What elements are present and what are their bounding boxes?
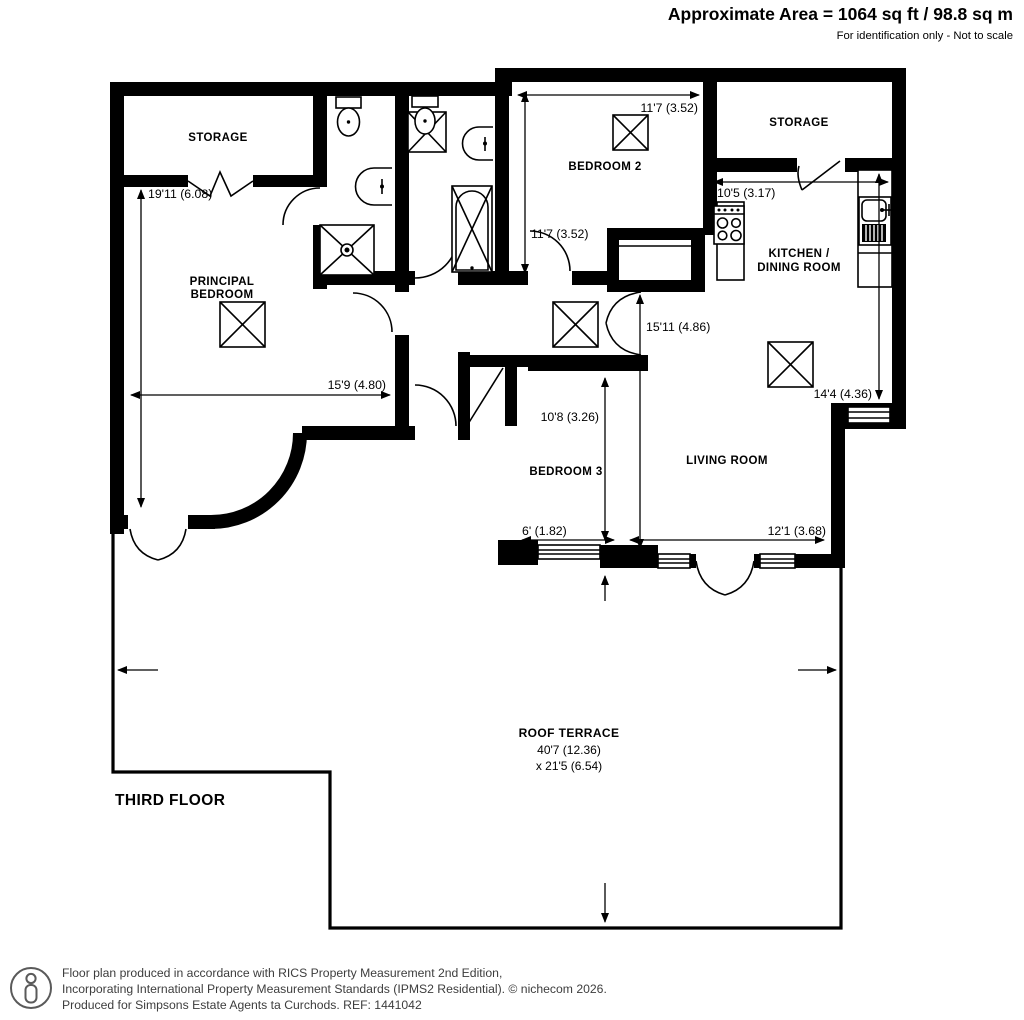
window-kitchen bbox=[848, 407, 890, 423]
room-label-kitchen-line2: DINING ROOM bbox=[757, 262, 841, 274]
kitchen-sink-icon bbox=[859, 197, 891, 245]
dim-label-kitchen-w: 10'5 (3.17) bbox=[717, 186, 775, 200]
dim-label-principal-h: 15'9 (4.80) bbox=[328, 378, 386, 392]
floor-plan-page: Approximate Area = 1064 sq ft / 98.8 sq … bbox=[0, 0, 1024, 1020]
toilet-icon bbox=[336, 97, 361, 136]
sink-icon bbox=[463, 127, 494, 160]
door-storage-right bbox=[798, 161, 840, 190]
door-arc-ensuite bbox=[283, 188, 320, 225]
french-doors-bedroom-terrace bbox=[130, 529, 186, 560]
ceiling-light-icon bbox=[220, 302, 265, 347]
kitchen-cupboard-recess bbox=[619, 240, 691, 280]
room-label-principal-line2: BEDROOM bbox=[191, 289, 254, 301]
dim-label-kitchen-d: 14'4 (4.36) bbox=[814, 387, 872, 401]
terrace-dim-width: 40'7 (12.36) bbox=[537, 743, 601, 757]
curved-wall bbox=[211, 433, 300, 522]
double-doors-living bbox=[606, 292, 641, 355]
dim-label-bed3-w: 6' (1.82) bbox=[522, 524, 567, 538]
door-arc-principal-bedroom bbox=[353, 293, 392, 332]
footer-line2: Incorporating International Property Mea… bbox=[62, 982, 607, 996]
identification-note: For identification only - Not to scale bbox=[837, 30, 1013, 42]
dim-label-principal-v: 19'11 (6.08) bbox=[148, 187, 212, 201]
ceiling-light-icon bbox=[768, 342, 813, 387]
person-icon bbox=[11, 968, 51, 1008]
window-living-right bbox=[760, 554, 795, 568]
hob-icon bbox=[714, 206, 744, 244]
terrace-outline bbox=[113, 532, 841, 928]
door-arc-bedroom3 bbox=[415, 385, 456, 426]
room-label-kitchen-line1: KITCHEN / bbox=[768, 248, 830, 260]
bathroom1-fixtures bbox=[320, 97, 392, 275]
shower-icon bbox=[320, 225, 374, 275]
approx-area-title: Approximate Area = 1064 sq ft / 98.8 sq … bbox=[668, 4, 1013, 24]
room-label-storage-left: STORAGE bbox=[188, 132, 247, 144]
room-label-living: LIVING ROOM bbox=[686, 455, 768, 467]
floor-title: THIRD FLOOR bbox=[115, 792, 225, 809]
dim-label-hall-v: 15'11 (4.86) bbox=[646, 320, 710, 334]
footer-line1: Floor plan produced in accordance with R… bbox=[62, 966, 502, 980]
terrace-dim-depth: x 21'5 (6.54) bbox=[536, 759, 602, 773]
french-doors-terrace bbox=[696, 561, 754, 595]
room-label-bedroom2: BEDROOM 2 bbox=[568, 161, 641, 173]
bathtub-icon bbox=[452, 186, 492, 272]
sink-icon bbox=[356, 168, 393, 205]
bathroom2-fixtures bbox=[408, 96, 493, 272]
room-label-principal-line1: PRINCIPAL bbox=[190, 276, 255, 288]
dim-label-living-w: 12'1 (3.68) bbox=[768, 524, 826, 538]
toilet-icon bbox=[412, 96, 438, 134]
room-label-storage-right: STORAGE bbox=[769, 117, 828, 129]
dim-label-bed2-v: 11'7 (3.52) bbox=[531, 227, 589, 241]
door-closet-angled bbox=[468, 368, 503, 424]
dim-label-bed2-h: 11'7 (3.52) bbox=[641, 101, 699, 115]
footer-line3: Produced for Simpsons Estate Agents ta C… bbox=[62, 998, 422, 1012]
ceiling-light-icon bbox=[553, 302, 598, 347]
room-label-bedroom3: BEDROOM 3 bbox=[529, 466, 602, 478]
window-bedroom3 bbox=[538, 545, 600, 559]
dim-label-bed3-v: 10'8 (3.26) bbox=[541, 410, 599, 424]
floorplan-svg: Approximate Area = 1064 sq ft / 98.8 sq … bbox=[0, 0, 1024, 1020]
ceiling-light-icon bbox=[613, 115, 648, 150]
room-label-roof-terrace: ROOF TERRACE bbox=[519, 726, 620, 740]
window-living-left bbox=[658, 554, 690, 568]
